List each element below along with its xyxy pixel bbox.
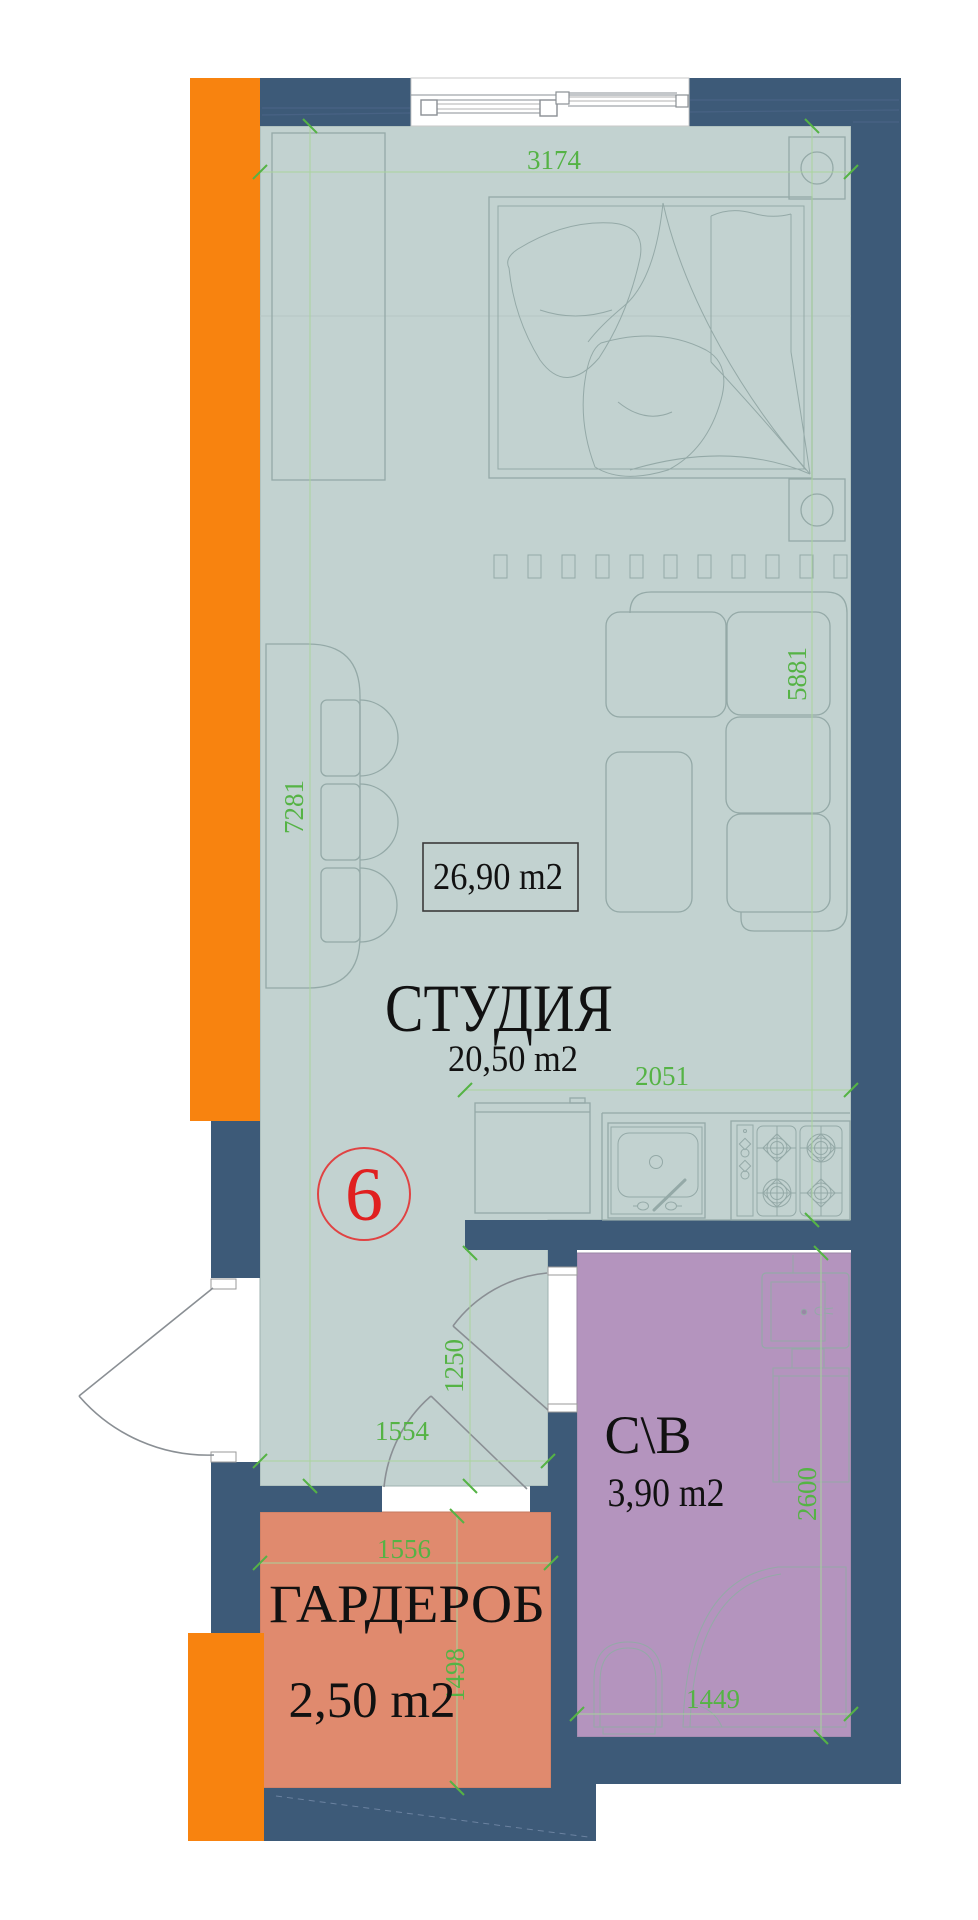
svg-text:С\В: С\В	[605, 1405, 692, 1465]
svg-text:6: 6	[345, 1153, 383, 1237]
svg-text:26,90 m2: 26,90 m2	[433, 856, 563, 898]
svg-text:3,90 m2: 3,90 m2	[608, 1470, 725, 1515]
svg-text:2600: 2600	[792, 1467, 822, 1521]
svg-text:1556: 1556	[377, 1534, 431, 1564]
svg-text:2051: 2051	[635, 1061, 689, 1091]
svg-text:7281: 7281	[279, 780, 309, 834]
svg-text:5881: 5881	[782, 647, 812, 701]
svg-text:20,50 m2: 20,50 m2	[448, 1039, 578, 1080]
svg-text:1449: 1449	[686, 1684, 740, 1714]
svg-text:2,50 m2: 2,50 m2	[289, 1673, 456, 1729]
svg-text:1250: 1250	[439, 1339, 469, 1393]
svg-text:СТУДИЯ: СТУДИЯ	[385, 970, 613, 1046]
svg-text:ГАРДЕРОБ: ГАРДЕРОБ	[269, 1574, 545, 1634]
svg-text:3174: 3174	[527, 145, 582, 175]
svg-text:1554: 1554	[375, 1416, 430, 1446]
